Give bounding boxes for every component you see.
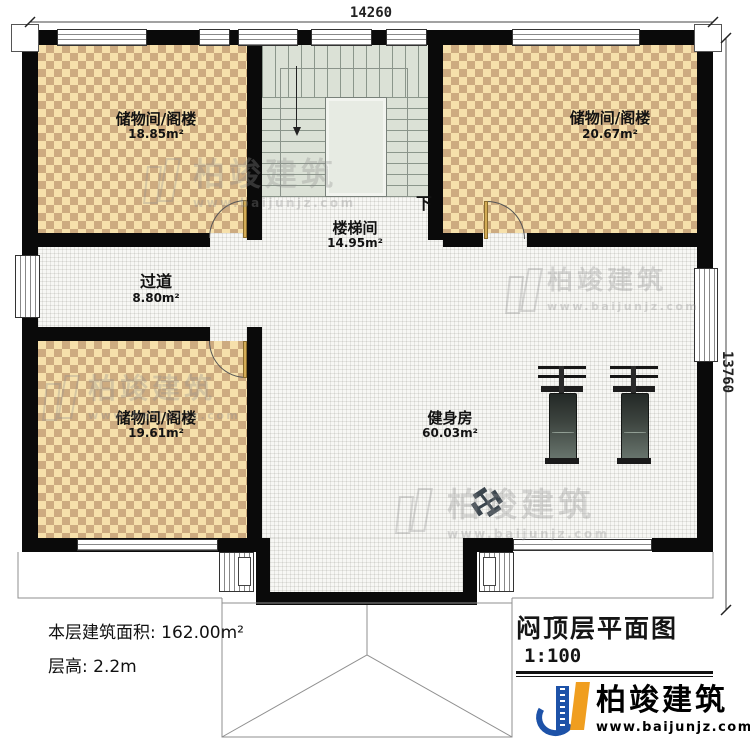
bench-foot-icon (545, 458, 579, 464)
window-bottom-left (77, 539, 218, 551)
window-bottom-right (513, 539, 652, 551)
rack-post-icon (559, 366, 564, 394)
wall-bottom-right (652, 538, 713, 552)
stair-direction-arrow (293, 127, 301, 136)
logo-orange-tower-icon (570, 682, 590, 730)
dimension-right-label: 13760 (719, 351, 735, 393)
wall-porch-bottom (256, 592, 477, 605)
wall-room-tl-bottom (38, 233, 210, 247)
floor-notes: 本层建筑面积: 162.00m² 层高: 2.2m (48, 618, 244, 677)
dimension-top-label: 14260 (350, 5, 392, 21)
room-area-storage-top-left: 18.85m² (128, 128, 184, 141)
title-underline-thin (516, 676, 713, 677)
window-top-5 (386, 29, 427, 46)
wall-bottom-mid (463, 538, 513, 552)
room-area-gym: 60.03m² (422, 427, 478, 440)
floor-height-label: 层高: (48, 657, 88, 677)
floor-plan-page: 14260 13760 储物间/阁楼 18.85m² 储物间/阁楼 20.67m… (0, 0, 750, 750)
door-leaf-room-tr (484, 201, 488, 239)
door-leaf-room-tl (243, 200, 247, 238)
window-right-gym (694, 268, 718, 362)
room-label-storage-bottom-left: 储物间/阁楼 (116, 410, 196, 427)
door-leaf-room-bl (243, 341, 247, 378)
wall-room-bl-right (247, 327, 262, 552)
chimney-top-right (694, 24, 722, 52)
room-label-gym: 健身房 (427, 410, 472, 427)
room-area-storage-bottom-left: 19.61m² (128, 427, 184, 440)
brand-logo (536, 680, 592, 742)
porch-pillar-right (483, 557, 496, 586)
room-label-corridor: 过道 (140, 273, 172, 291)
logo-blue-tower-icon (556, 686, 569, 730)
chimney-top-left (11, 24, 39, 52)
bench-icon (621, 393, 649, 464)
porch-floor (270, 538, 463, 594)
floor-height-value: 2.2m (93, 657, 137, 677)
wall-room-bl-top (38, 327, 210, 341)
stair-down-label: 下 (416, 195, 432, 213)
window-top-3 (238, 29, 298, 46)
room-label-stairwell: 楼梯间 (332, 220, 377, 237)
room-area-stairwell: 14.95m² (327, 237, 383, 250)
bench-press-machine-1 (538, 366, 586, 464)
room-area-corridor: 8.80m² (132, 292, 179, 305)
title-block: 闷顶层平面图 1:100 (516, 609, 713, 677)
stair-direction-line (296, 66, 297, 128)
wall-room-tr-bottom-b (527, 233, 697, 247)
window-top-6 (512, 29, 640, 46)
window-top-1 (57, 29, 147, 46)
brand-site: www.baijunjz.com (596, 720, 750, 735)
room-label-storage-top-left: 储物间/阁楼 (116, 111, 196, 128)
floor-area-label: 本层建筑面积: (48, 623, 156, 643)
room-area-storage-top-right: 20.67m² (582, 128, 638, 141)
stair-landing (325, 97, 387, 197)
brand-text: 柏竣建筑 www.baijunjz.com (596, 686, 750, 735)
room-storage-top-right (443, 45, 697, 233)
title-underline-thick (516, 671, 713, 674)
floor-area-value: 162.00m² (161, 623, 244, 643)
porch-pillar-left (238, 557, 251, 586)
room-label-storage-top-right: 储物间/阁楼 (570, 110, 650, 127)
window-top-4 (311, 29, 372, 46)
wall-room-tr-bottom-a (443, 233, 483, 247)
bench-foot-icon (617, 458, 651, 464)
window-left-corridor (15, 255, 40, 318)
rack-post-icon (631, 366, 636, 394)
plan-scale: 1:100 (524, 645, 581, 667)
wall-stair-left (247, 45, 262, 240)
plan-title: 闷顶层平面图 (516, 614, 678, 643)
window-top-2 (199, 29, 230, 46)
bench-press-machine-2 (610, 366, 658, 464)
brand-name: 柏竣建筑 (596, 686, 750, 716)
bench-icon (549, 393, 577, 464)
